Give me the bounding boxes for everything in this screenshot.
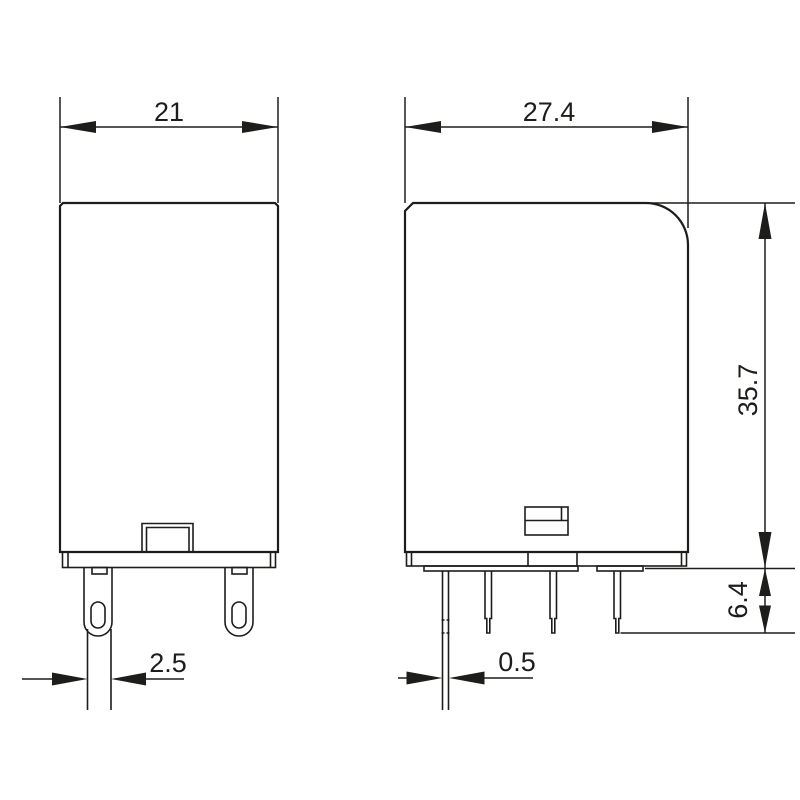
- dim-side-width-label: 27.4: [523, 97, 576, 127]
- arrowhead-right-icon: [242, 121, 278, 133]
- dim-pin-length: 6.4: [621, 569, 796, 634]
- side-base-flange: [407, 552, 687, 571]
- arrowhead-right-icon: [52, 673, 88, 686]
- dim-body-height: 35.7: [645, 203, 795, 569]
- dim-front-width: 21: [60, 97, 278, 203]
- dim-side-pin-thickness-label: 0.5: [498, 647, 536, 677]
- side-pin-3: [550, 571, 557, 633]
- dim-body-height-label: 35.7: [733, 364, 763, 417]
- dim-front-pin-width: 2.5: [22, 648, 187, 686]
- front-housing-outline: [60, 203, 278, 552]
- arrowhead-down-icon: [759, 606, 771, 634]
- arrowhead-down-icon: [759, 532, 772, 568]
- dim-pin-length-label: 6.4: [723, 581, 753, 619]
- technical-drawing: 21 2.5: [0, 0, 800, 800]
- dim-side-width: 27.4: [405, 97, 688, 228]
- pin-shoulder: [232, 568, 247, 575]
- side-view: 27.4: [398, 97, 795, 710]
- front-base-flange: [63, 552, 276, 568]
- side-housing-outline: [405, 203, 688, 552]
- pin-slot: [232, 602, 246, 628]
- side-latch-window: [525, 507, 568, 535]
- base-outline: [407, 552, 687, 566]
- front-latch-inner: [147, 528, 190, 553]
- dim-side-pin-thickness: 0.5: [398, 647, 536, 685]
- dim-front-pin-width-label: 2.5: [149, 648, 187, 678]
- arrowhead-up-icon: [759, 203, 772, 239]
- pin-slot: [91, 602, 105, 628]
- base-subplate-left: [424, 566, 578, 571]
- dim-front-width-label: 21: [154, 97, 184, 127]
- side-pin-1-long: [442, 571, 450, 710]
- arrowhead-up-icon: [759, 569, 771, 597]
- base-subplate-right: [597, 566, 643, 571]
- arrowhead-right-icon: [407, 672, 443, 685]
- front-view: 21 2.5: [22, 97, 278, 710]
- front-pin-right: [225, 568, 253, 637]
- arrowhead-left-icon: [405, 121, 441, 133]
- arrowhead-left-icon: [449, 672, 485, 685]
- arrowhead-left-icon: [111, 673, 146, 686]
- arrowhead-right-icon: [652, 121, 688, 133]
- pin-shoulder: [92, 568, 107, 575]
- side-pin-4: [614, 571, 621, 633]
- drawing-canvas: 21 2.5: [0, 0, 800, 800]
- front-pin-left: [84, 568, 112, 711]
- side-pins: [442, 571, 621, 710]
- arrowhead-left-icon: [60, 121, 96, 133]
- side-pin-2: [485, 571, 492, 633]
